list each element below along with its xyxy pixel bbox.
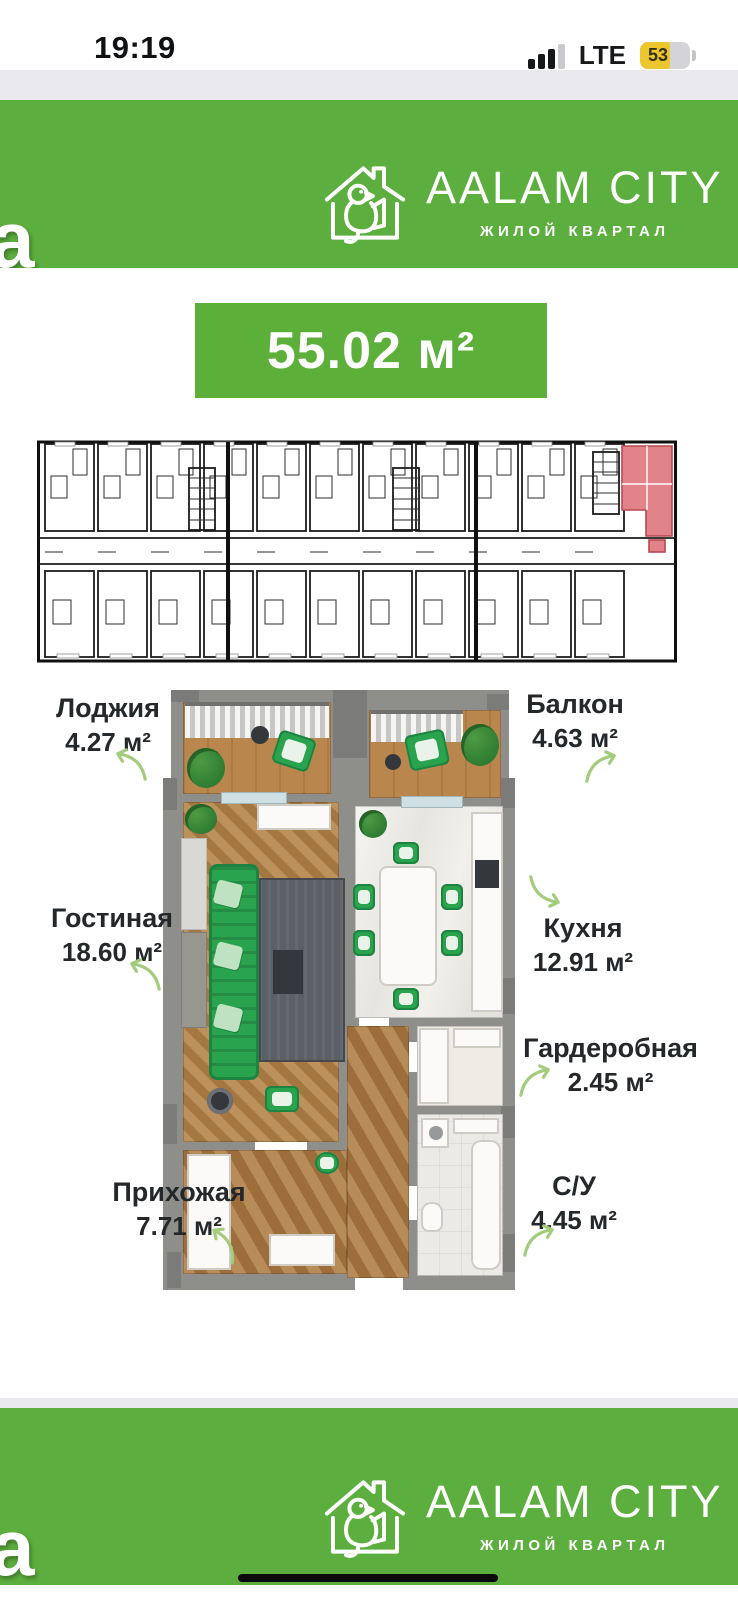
arrow-balcony xyxy=(582,750,620,784)
total-area-badge: 55.02 м² xyxy=(195,303,547,398)
pillar xyxy=(163,778,177,810)
dining-chair xyxy=(393,842,419,864)
dining-chair xyxy=(441,930,463,956)
bath-shelf xyxy=(453,1118,499,1134)
dining-chair xyxy=(353,884,375,910)
floor-lamp xyxy=(207,1088,233,1114)
house-bird-logo-icon xyxy=(320,1466,410,1568)
hallway-pouf xyxy=(315,1152,339,1174)
stove xyxy=(475,860,499,888)
label-kitchen: Кухня 12.91 м² xyxy=(513,912,653,979)
wardrobe-doorway xyxy=(409,1042,417,1072)
pillar xyxy=(163,1104,177,1144)
network-type-label: LTE xyxy=(579,40,626,71)
brand-tagline: ЖИЛОЙ КВАРТАЛ xyxy=(426,223,724,240)
arrow-wardrobe xyxy=(516,1064,554,1098)
battery-icon: 53 xyxy=(640,42,690,69)
dining-chair xyxy=(353,930,375,956)
battery-percent: 53 xyxy=(640,45,676,66)
header-banner: a AALAM CITY ЖИЛОЙ КВАРТАЛ xyxy=(0,100,738,268)
footer-banner: a AALAM CITY ЖИЛОЙ КВАРТАЛ xyxy=(0,1408,738,1585)
brand-text: AALAM CITY ЖИЛОЙ КВАРТАЛ xyxy=(426,152,724,240)
pillar xyxy=(501,978,515,1014)
battery-cap xyxy=(692,50,696,61)
balcony-side-table xyxy=(385,754,401,770)
arrow-loggia xyxy=(112,748,150,782)
dining-chair xyxy=(441,884,463,910)
living-doorway xyxy=(255,1142,307,1150)
loggia-sliding-door xyxy=(221,792,287,804)
pillar xyxy=(167,1252,181,1288)
building-floor-plan xyxy=(37,440,677,663)
living-ottoman xyxy=(265,1086,299,1112)
top-divider-strip xyxy=(0,70,738,100)
brand-logo: AALAM CITY ЖИЛОЙ КВАРТАЛ xyxy=(320,152,724,254)
brand-name: AALAM CITY xyxy=(426,162,724,214)
bottom-divider-strip xyxy=(0,1398,738,1408)
pillar xyxy=(501,1106,515,1138)
kitchen-doorway xyxy=(359,1018,389,1026)
pillar xyxy=(501,778,515,808)
toilet xyxy=(421,1202,443,1232)
bathroom-doorway xyxy=(409,1186,417,1220)
hallway-closet-low xyxy=(269,1234,335,1266)
loggia-side-table xyxy=(251,726,269,744)
label-balcony: Балкон 4.63 м² xyxy=(505,688,645,755)
signal-strength-icon xyxy=(528,43,565,69)
arrow-kitchen xyxy=(526,874,564,908)
dining-table xyxy=(379,866,437,986)
brand-text: AALAM CITY ЖИЛОЙ КВАРТАЛ xyxy=(426,1466,724,1554)
brand-logo: AALAM CITY ЖИЛОЙ КВАРТАЛ xyxy=(320,1466,724,1568)
living-plant xyxy=(185,804,217,834)
coffee-table xyxy=(273,950,303,994)
status-time: 19:19 xyxy=(94,30,176,66)
watermark-letter: a xyxy=(0,194,35,268)
kitchen-plant xyxy=(359,810,387,838)
balcony-plant xyxy=(461,724,499,766)
screenshot-root: 19:19 LTE 53 a xyxy=(0,0,738,1600)
corridor-floor xyxy=(347,1026,409,1278)
arrow-living xyxy=(126,958,164,992)
home-indicator[interactable] xyxy=(238,1574,498,1582)
bathtub xyxy=(471,1140,501,1270)
apartment-plan-section: Лоджия 4.27 м² Балкон 4.63 м² Гостиная 1… xyxy=(0,662,738,1312)
arrow-bathroom xyxy=(520,1224,558,1258)
status-bar: 19:19 LTE 53 xyxy=(0,0,738,70)
brand-name: AALAM CITY xyxy=(426,1476,724,1528)
watermark-letter: a xyxy=(0,1502,35,1585)
wardrobe-closet xyxy=(419,1028,449,1104)
loggia-plant xyxy=(187,748,225,788)
label-loggia: Лоджия 4.27 м² xyxy=(38,692,178,759)
entrance-doorway xyxy=(355,1278,403,1290)
status-icons: LTE 53 xyxy=(528,40,690,71)
pillar xyxy=(333,690,367,758)
living-sideboard xyxy=(257,804,331,830)
wardrobe-shelf xyxy=(453,1028,501,1048)
pillar xyxy=(501,1234,515,1272)
kitchen-counter xyxy=(471,812,503,1012)
washer-door xyxy=(429,1126,443,1140)
dining-chair xyxy=(393,988,419,1010)
brand-tagline: ЖИЛОЙ КВАРТАЛ xyxy=(426,1537,724,1554)
balcony-door xyxy=(401,796,463,808)
house-bird-logo-icon xyxy=(320,152,410,254)
